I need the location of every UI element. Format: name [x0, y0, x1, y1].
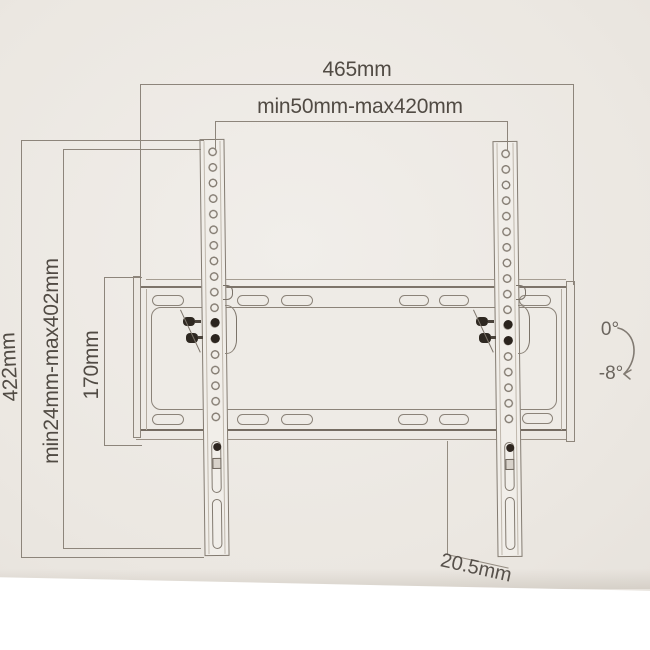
wall-plate-right-fold-line: [561, 289, 562, 430]
clamp-knob-stem: [491, 336, 496, 339]
lock-latch: [505, 459, 514, 470]
lock-latch: [212, 458, 221, 469]
tilt-arc-arrow-icon: [612, 322, 646, 382]
plate-slot: [439, 414, 469, 425]
plate-slot: [439, 295, 469, 306]
rail-range-label: min50mm-max420mm: [240, 95, 480, 119]
total-width-label: 465mm: [277, 58, 437, 82]
vesa-range-label: min24mm-max402mm: [40, 256, 64, 466]
rail-range-ext-left: [215, 121, 216, 149]
rail-range-dim-line: [215, 121, 507, 122]
right-rail-bottom-slot: [505, 497, 516, 550]
rail-hook: [518, 305, 530, 354]
mount-bolt-hole-filled: [211, 334, 220, 343]
plate-slot: [281, 295, 313, 306]
rail-top-claw: [516, 285, 526, 300]
mount-bolt-hole-filled: [504, 320, 513, 329]
wall-plate-right-flange: [566, 281, 575, 442]
rail-top-claw: [223, 285, 233, 300]
lock-pin: [213, 443, 221, 451]
lock-pin: [506, 444, 514, 452]
rail-hook: [225, 305, 237, 354]
clamp-knob-stem: [488, 320, 494, 323]
plate-slot: [522, 413, 553, 424]
plate-slot: [399, 295, 429, 306]
plate-slot: [281, 414, 313, 425]
mount-bolt-hole-filled: [504, 336, 513, 345]
dimension-plate-height-box: [104, 277, 142, 446]
depth-ext-line: [447, 441, 448, 554]
total-width-dim-line: [140, 84, 573, 85]
plate-height-label: 170mm: [80, 325, 104, 405]
total-width-ext-right: [573, 84, 574, 285]
plate-slot: [237, 414, 269, 425]
plate-slot: [237, 295, 269, 306]
left-rail-bottom-slot: [212, 499, 223, 549]
mount-bolt-hole-filled: [211, 318, 220, 327]
wall-mount-dimension-diagram: 465mm min50mm-max420mm 422mm min24mm-max…: [0, 0, 650, 650]
plate-slot: [398, 414, 428, 425]
rail-range-ext-right: [507, 121, 508, 150]
